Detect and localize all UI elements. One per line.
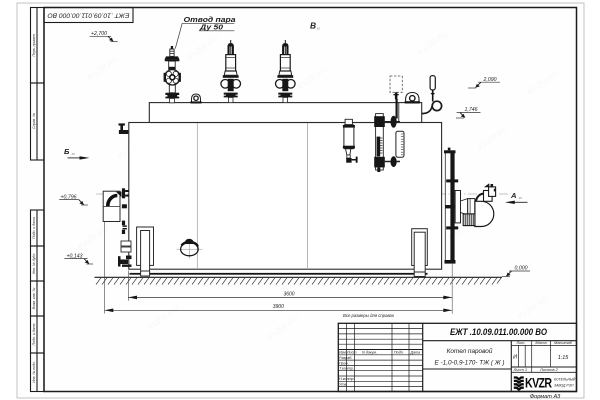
svg-text:Изм.: Изм.	[339, 351, 347, 355]
svg-text:N докум.: N докум.	[362, 351, 377, 355]
svg-text:А: А	[510, 191, 516, 200]
svg-text:Утв.: Утв.	[339, 383, 347, 387]
svg-text:Перв. примен.: Перв. примен.	[32, 33, 36, 56]
svg-text:ЗАВОД РЭП: ЗАВОД РЭП	[554, 384, 574, 388]
svg-text:1:15: 1:15	[558, 355, 569, 361]
svg-text:Пров.: Пров.	[339, 361, 349, 365]
svg-text:Лит.: Лит.	[516, 341, 526, 345]
svg-text:Формат А3: Формат А3	[530, 394, 561, 400]
svg-text:KVZR: KVZR	[525, 375, 552, 391]
svg-text:Отвод пара: Отвод пара	[184, 16, 236, 24]
svg-text:1,746: 1,746	[465, 107, 478, 113]
svg-text:Подп. и дата: Подп. и дата	[32, 217, 36, 239]
svg-text:Справ. №: Справ. №	[32, 113, 36, 129]
svg-text:Н.контр.: Н.контр.	[339, 377, 355, 381]
svg-text:Взам. инв. №: Взам. инв. №	[32, 287, 36, 309]
svg-text:Подп.: Подп.	[394, 351, 404, 355]
svg-text:Дата: Дата	[410, 351, 421, 355]
svg-text:Разраб.: Разраб.	[339, 356, 352, 360]
svg-text:Лист 1: Лист 1	[513, 367, 528, 372]
svg-text:10: 10	[519, 196, 523, 200]
svg-text:10: 10	[317, 27, 321, 31]
svg-text:3600: 3600	[283, 291, 294, 297]
svg-text:И: И	[513, 355, 517, 361]
svg-text:КОТЕЛЬНЫЙ: КОТЕЛЬНЫЙ	[554, 378, 576, 382]
svg-text:В: В	[310, 21, 316, 31]
svg-text:Б: Б	[64, 147, 70, 156]
svg-text:Котел паровой: Котел паровой	[447, 347, 493, 355]
svg-text:ЕЖТ .10.09.011.00.000 ВО: ЕЖТ .10.09.011.00.000 ВО	[48, 11, 130, 18]
svg-text:Листов 2: Листов 2	[539, 367, 559, 372]
svg-text:Масштаб: Масштаб	[554, 341, 573, 345]
svg-text:Лист: Лист	[346, 351, 357, 355]
svg-text:Подп. и дата: Подп. и дата	[32, 323, 36, 345]
svg-text:Инв. № дубл.: Инв. № дубл.	[32, 253, 36, 275]
svg-text:Масса: Масса	[535, 341, 546, 345]
svg-text:Е -1,0-0,9-170- ТЖ ( Ж ): Е -1,0-0,9-170- ТЖ ( Ж )	[434, 359, 504, 366]
svg-text:ЕЖТ .10.09.011.00.000 ВО: ЕЖТ .10.09.011.00.000 ВО	[450, 327, 547, 337]
svg-text:Т.контр.: Т.контр.	[339, 367, 354, 371]
svg-text:Все размеры для справок: Все размеры для справок	[343, 313, 395, 319]
svg-text:10: 10	[72, 152, 76, 156]
svg-text:3900: 3900	[273, 304, 284, 310]
svg-text:Инв. № подл.: Инв. № подл.	[32, 361, 36, 383]
